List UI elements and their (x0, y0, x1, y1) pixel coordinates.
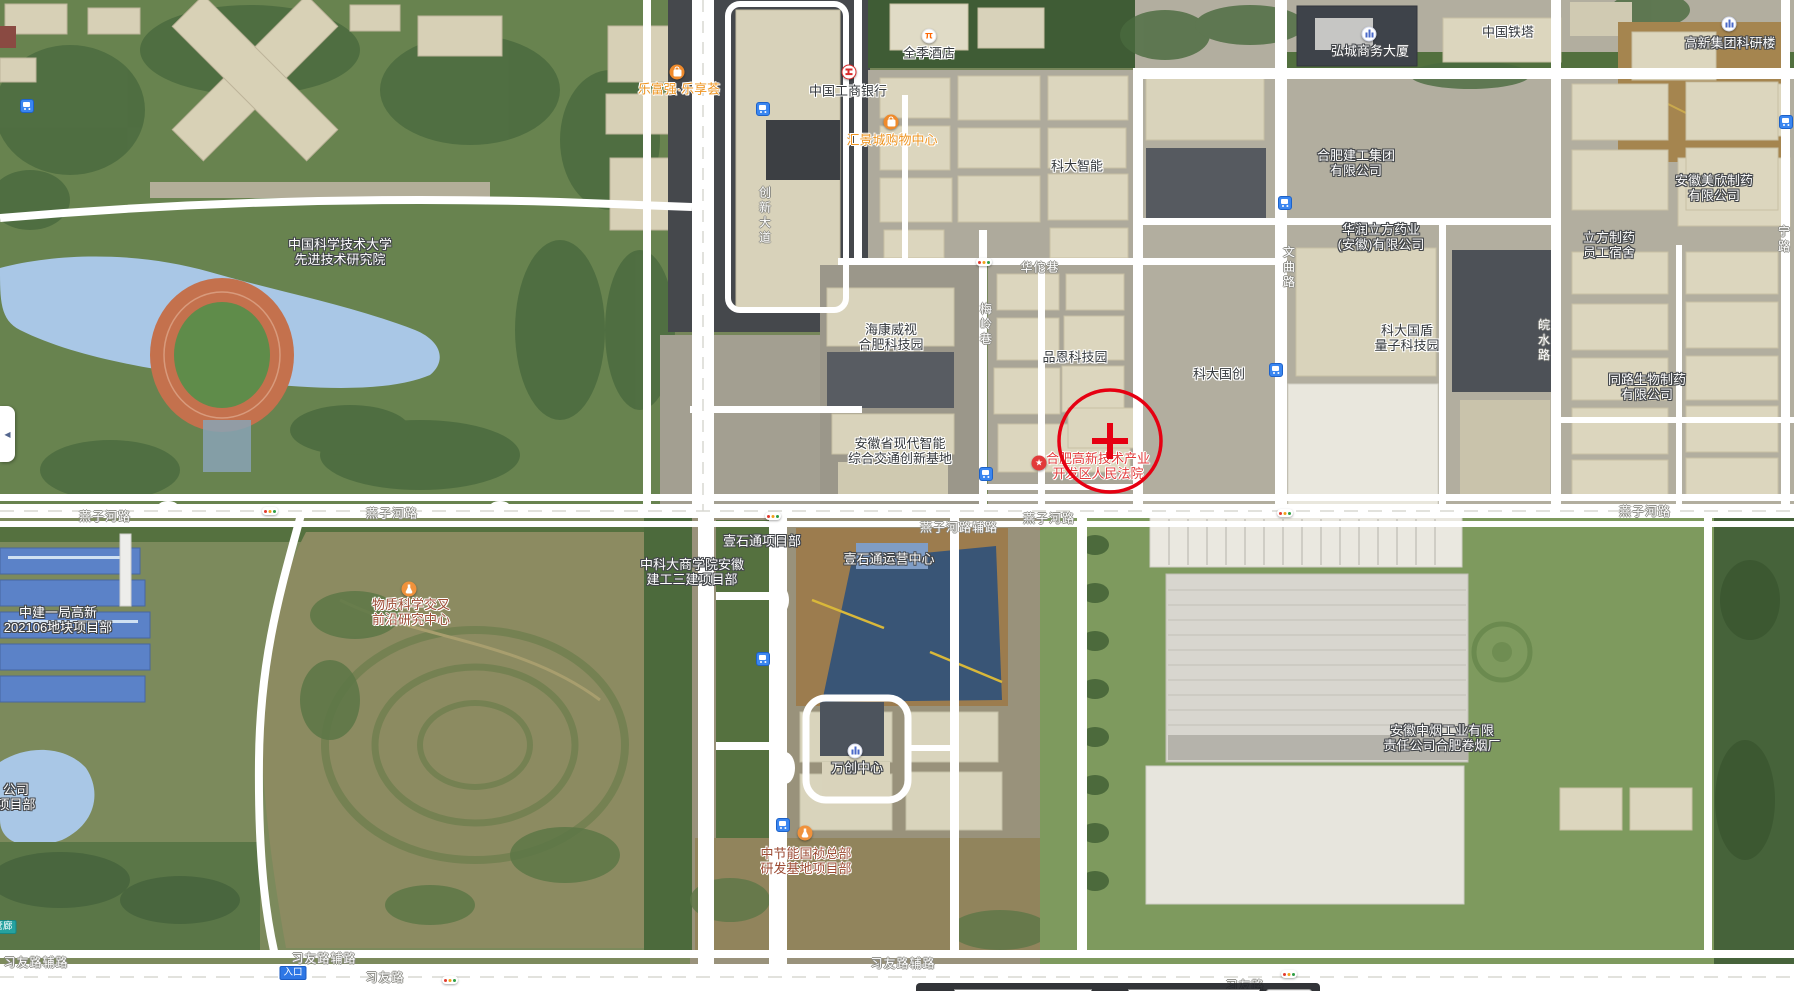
icbc-bank-bank-icon[interactable] (842, 65, 857, 80)
poi-label-line: 弘城商务大厦 (1331, 44, 1409, 59)
gaoxin-court-star-icon[interactable] (1032, 456, 1047, 471)
zhongjieneng-project-label[interactable]: 中节能国祯总部研发基地项目部 (760, 846, 851, 876)
poi-label-line: 安徽美欣制药 (1675, 173, 1753, 188)
hongcheng-tower-building-icon[interactable] (1362, 27, 1377, 42)
poi-label-line: 合肥建工集团 (1317, 148, 1395, 163)
poi-label-line: 建工三建项目部 (640, 572, 744, 587)
poi-label-line: 科大智能 (1051, 159, 1103, 174)
quanji-hotel-label[interactable]: 全季酒店 (903, 46, 955, 61)
poi-label-line: 同路生物制药 (1608, 372, 1686, 387)
road-label-9: 皖水路 (1536, 319, 1553, 364)
keda-zhineng-label[interactable]: 科大智能 (1051, 159, 1103, 174)
hefei-jiangong-group-label[interactable]: 合肥建工集团有限公司 (1317, 148, 1395, 178)
road-label-11: 习友路辅路 (3, 954, 68, 971)
left-edge-fragment-label[interactable]: 公司项目部 (0, 782, 36, 812)
road-label-7: 梅岭巷 (978, 303, 995, 348)
huijing-mall-shopping-icon[interactable] (884, 115, 899, 130)
map-viewport[interactable]: 乐富强·乐享荟全季酒店中国工商银行汇景城购物中心科大智能弘城商务大厦中国铁塔高新… (0, 0, 1794, 991)
road-label-10: 宁路 (1776, 225, 1793, 255)
poi-label-line: 有限公司 (1608, 387, 1686, 402)
pipe-gallery-badge: 管廊 (0, 920, 17, 934)
tonglu-bio-label[interactable]: 同路生物制药有限公司 (1608, 372, 1686, 402)
bus-stop-icon[interactable] (756, 102, 770, 116)
poi-label-line: 综合交通创新基地 (848, 451, 952, 466)
pinen-tech-park-label[interactable]: 品恩科技园 (1042, 350, 1107, 365)
bus-stop-icon[interactable] (1779, 115, 1793, 129)
traffic-light-icon (765, 512, 781, 520)
poi-label-line: 202106地块项目部 (4, 620, 112, 635)
poi-label-line: 壹石通运营中心 (843, 552, 934, 567)
keda-guochuang-label[interactable]: 科大国创 (1193, 367, 1245, 382)
poi-label-line: 中节能国祯总部 (760, 846, 851, 861)
zhongjieneng-project-flask-icon[interactable] (798, 826, 813, 841)
poi-label-line: 壹石通项目部 (723, 534, 801, 549)
poi-label-line: 中国工商银行 (809, 84, 887, 99)
chevron-left-icon: ◀ (4, 430, 10, 439)
wuzhi-science-center-label[interactable]: 物质科学交叉前沿研究中心 (372, 597, 450, 627)
wanchuang-center-building-icon[interactable] (848, 744, 863, 759)
satellite-map-canvas[interactable] (0, 0, 1794, 991)
poi-label-line: 中建一局高新 (4, 605, 112, 620)
anhui-jiaotong-base-label[interactable]: 安徽省现代智能综合交通创新基地 (848, 436, 952, 466)
zhongjian-project-label[interactable]: 中建一局高新202106地块项目部 (4, 605, 112, 635)
poi-label-line: 量子科技园 (1374, 338, 1439, 353)
gaoxin-court-label[interactable]: 合肥高新技术产业开发区人民法院 (1046, 451, 1150, 481)
road-label-8: 文曲路 (1281, 246, 1298, 291)
lifang-dormitory-label[interactable]: 立方制药员工宿舍 (1583, 230, 1635, 260)
poi-label-line: 科大国盾 (1374, 323, 1439, 338)
road-label-5: 华佗巷 (1020, 259, 1059, 276)
traffic-light-icon (1277, 509, 1293, 517)
meixin-pharma-label[interactable]: 安徽美欣制药有限公司 (1675, 173, 1753, 203)
hikvision-park-label[interactable]: 海康威视合肥科技园 (858, 322, 923, 352)
road-label-13: 习友路辅路 (870, 955, 935, 972)
wuzhi-science-center-flask-icon[interactable] (402, 582, 417, 597)
keshang-project-label[interactable]: 中科大商学院安徽建工三建项目部 (640, 557, 744, 587)
poi-label-line: 开发区人民法院 (1046, 466, 1150, 481)
guodun-quantum-park-label[interactable]: 科大国盾量子科技园 (1374, 323, 1439, 353)
poi-label-line: 责任公司合肥卷烟厂 (1383, 738, 1500, 753)
poi-label-line: 汇景城购物中心 (846, 133, 937, 148)
gaoxin-keyan-building-building-icon[interactable] (1722, 17, 1737, 32)
poi-label-line: 先进技术研究院 (288, 252, 392, 267)
road-label-14: 习友路 (365, 969, 404, 986)
lefuqiang-mall-label[interactable]: 乐富强·乐享荟 (638, 82, 720, 97)
poi-label-line: 员工宿舍 (1583, 245, 1635, 260)
poi-label-line: 合肥高新技术产业 (1046, 451, 1150, 466)
bus-stop-icon[interactable] (20, 99, 34, 113)
traffic-light-icon (442, 976, 458, 984)
road-label-3: 燕子河路 (1619, 503, 1671, 520)
poi-label-line: 合肥科技园 (858, 337, 923, 352)
poi-label-line: 物质科学交叉 (372, 597, 450, 612)
poi-label-line: 公司 (0, 782, 36, 797)
gaoxin-keyan-building-label[interactable]: 高新集团科研楼 (1684, 36, 1775, 51)
icbc-bank-label[interactable]: 中国工商银行 (809, 84, 887, 99)
poi-label-line: 乐富强·乐享荟 (638, 82, 720, 97)
poi-label-line: 项目部 (0, 797, 36, 812)
ustc-institute-label[interactable]: 中国科学技术大学先进技术研究院 (288, 237, 392, 267)
entrance-badge: 入口 (279, 966, 306, 980)
poi-label-line: 研发基地项目部 (760, 861, 851, 876)
poi-label-line: 中科大商学院安徽 (640, 557, 744, 572)
bus-stop-icon[interactable] (1269, 363, 1283, 377)
huijing-mall-label[interactable]: 汇景城购物中心 (846, 133, 937, 148)
quanji-hotel-hotel-icon[interactable] (922, 29, 937, 44)
poi-label-line: 安徽中烟工业有限 (1383, 723, 1500, 738)
bottom-left-area (0, 511, 690, 991)
poi-label-line: 前沿研究中心 (372, 612, 450, 627)
traffic-light-icon (262, 507, 278, 515)
poi-label-line: 海康威视 (858, 322, 923, 337)
coordinate-bar: 经度 纬度 查询 (916, 983, 1320, 991)
yishitong-ops-center-label[interactable]: 壹石通运营中心 (843, 552, 934, 567)
bus-stop-icon[interactable] (979, 467, 993, 481)
china-tower-label[interactable]: 中国铁塔 (1482, 25, 1534, 40)
road-label-4: 燕子河路辅路 (920, 519, 998, 536)
poi-label-line: 立方制药 (1583, 230, 1635, 245)
bus-stop-icon[interactable] (776, 818, 790, 832)
zhongyan-cigarette-factory-label[interactable]: 安徽中烟工业有限责任公司合肥卷烟厂 (1383, 723, 1500, 753)
bus-stop-icon[interactable] (1278, 196, 1292, 210)
poi-label-line: 高新集团科研楼 (1684, 36, 1775, 51)
road-label-2: 燕子河路 (1023, 510, 1075, 527)
collapse-panel-button[interactable]: ◀ (0, 406, 15, 462)
poi-label-line: 中国科学技术大学 (288, 237, 392, 252)
traffic-light-icon (1281, 970, 1297, 978)
road-label-1: 燕子河路 (366, 505, 418, 522)
huarun-lifang-pharma-label[interactable]: 华润立方药业(安徽)有限公司 (1338, 222, 1425, 252)
road-label-12: 习友路辅路 (291, 950, 356, 967)
lefuqiang-mall-shopping-icon[interactable] (670, 65, 685, 80)
poi-label-line: 万创中心 (831, 761, 883, 776)
poi-label-line: 科大国创 (1193, 367, 1245, 382)
traffic-light-icon (976, 258, 992, 266)
wanchuang-center-label[interactable]: 万创中心 (831, 761, 883, 776)
bus-stop-icon[interactable] (756, 652, 770, 666)
poi-label-line: 中国铁塔 (1482, 25, 1534, 40)
poi-label-line: 华润立方药业 (1338, 222, 1425, 237)
road-label-0: 燕子河路 (79, 508, 131, 525)
poi-label-line: 有限公司 (1317, 163, 1395, 178)
poi-label-line: 安徽省现代智能 (848, 436, 952, 451)
hongcheng-tower-label[interactable]: 弘城商务大厦 (1331, 44, 1409, 59)
road-label-6: 创新大道 (757, 186, 774, 246)
poi-label-line: 全季酒店 (903, 46, 955, 61)
yishitong-project-label[interactable]: 壹石通项目部 (723, 534, 801, 549)
poi-label-line: 品恩科技园 (1042, 350, 1107, 365)
poi-label-line: (安徽)有限公司 (1338, 237, 1425, 252)
poi-label-line: 有限公司 (1675, 188, 1753, 203)
